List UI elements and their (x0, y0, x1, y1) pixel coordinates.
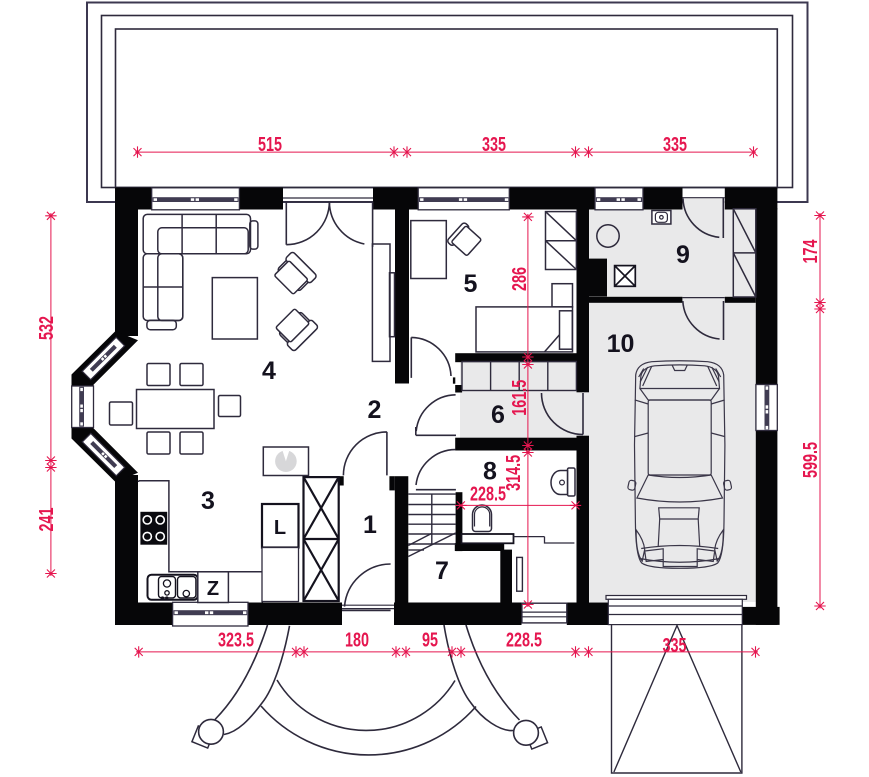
svg-text:Z: Z (207, 578, 219, 600)
svg-text:228.5: 228.5 (506, 628, 542, 651)
svg-text:7: 7 (435, 557, 449, 585)
svg-text:599.5: 599.5 (799, 442, 822, 478)
svg-text:5: 5 (464, 270, 478, 298)
svg-text:6: 6 (491, 401, 505, 429)
svg-text:286: 286 (508, 267, 531, 291)
svg-text:335: 335 (663, 133, 687, 156)
svg-text:335: 335 (482, 133, 506, 156)
svg-text:161.5: 161.5 (508, 380, 531, 416)
svg-text:515: 515 (258, 133, 282, 156)
svg-text:9: 9 (676, 241, 690, 269)
svg-text:L: L (274, 517, 286, 539)
svg-text:335: 335 (662, 634, 686, 657)
svg-text:2: 2 (368, 396, 382, 424)
svg-text:1: 1 (363, 511, 377, 539)
svg-text:8: 8 (483, 458, 497, 486)
svg-text:241: 241 (35, 507, 58, 531)
svg-text:532: 532 (35, 316, 58, 340)
svg-text:95: 95 (422, 628, 438, 651)
svg-text:3: 3 (201, 487, 215, 515)
svg-text:180: 180 (345, 628, 369, 651)
svg-text:10: 10 (607, 330, 635, 358)
svg-text:4: 4 (262, 357, 276, 385)
svg-text:174: 174 (799, 239, 822, 263)
svg-text:323.5: 323.5 (218, 628, 254, 651)
